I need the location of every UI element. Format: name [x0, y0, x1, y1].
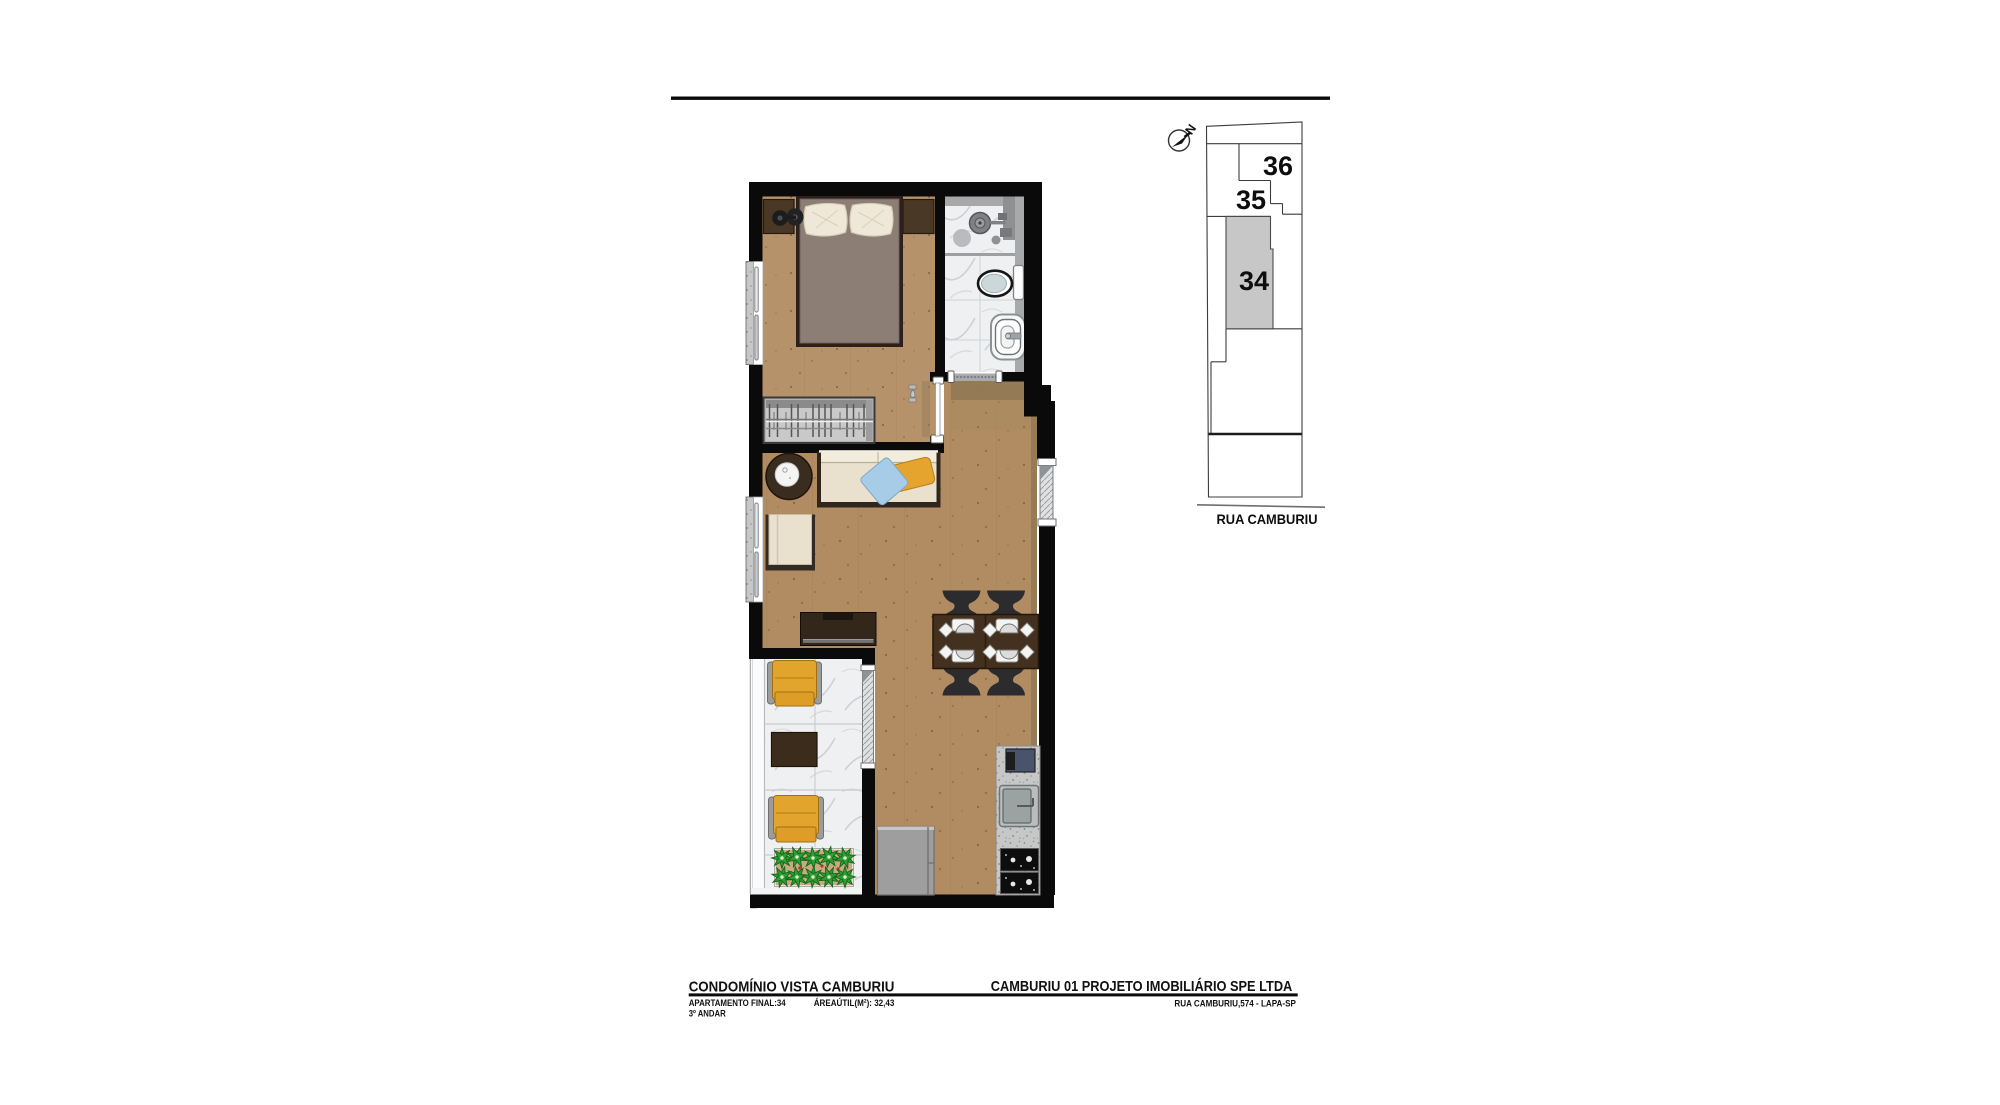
svg-text:35: 35 [1236, 185, 1266, 215]
svg-text:ÁREAÚTIL(M²): 32,43: ÁREAÚTIL(M²): 32,43 [814, 997, 895, 1008]
svg-text:3º ANDAR: 3º ANDAR [689, 1008, 726, 1018]
svg-text:34: 34 [1239, 266, 1269, 296]
svg-text:APARTAMENTO FINAL:34: APARTAMENTO FINAL:34 [689, 998, 787, 1008]
svg-text:RUA CAMBURIU: RUA CAMBURIU [1217, 512, 1318, 527]
svg-text:CONDOMÍNIO VISTA CAMBURIU: CONDOMÍNIO VISTA CAMBURIU [689, 978, 895, 995]
svg-text:CAMBURIU 01 PROJETO IMOBILIÁRI: CAMBURIU 01 PROJETO IMOBILIÁRIO SPE LTDA [991, 978, 1293, 995]
svg-text:36: 36 [1263, 151, 1293, 181]
svg-text:RUA CAMBURIU,574 - LAPA-SP: RUA CAMBURIU,574 - LAPA-SP [1174, 999, 1296, 1009]
